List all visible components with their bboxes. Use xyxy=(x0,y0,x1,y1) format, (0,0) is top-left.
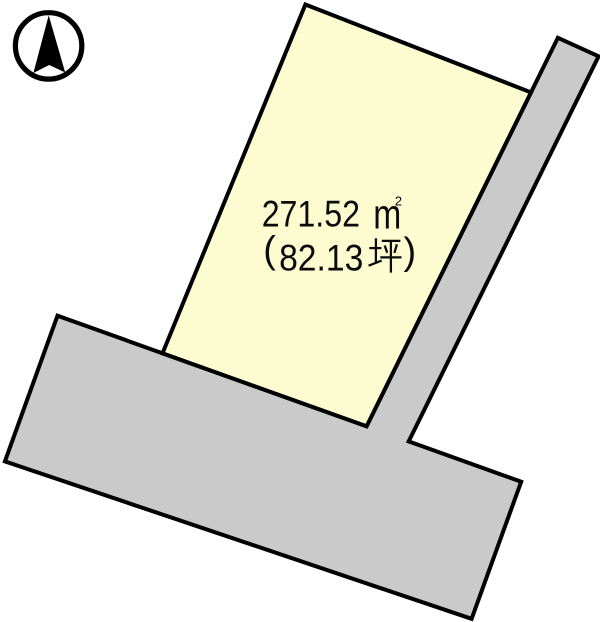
svg-text:271.52: 271.52 xyxy=(262,194,360,235)
svg-text:): ) xyxy=(404,231,417,273)
svg-text:2: 2 xyxy=(395,194,402,209)
svg-text:82.13: 82.13 xyxy=(279,237,363,279)
svg-text:(: ( xyxy=(263,230,276,272)
